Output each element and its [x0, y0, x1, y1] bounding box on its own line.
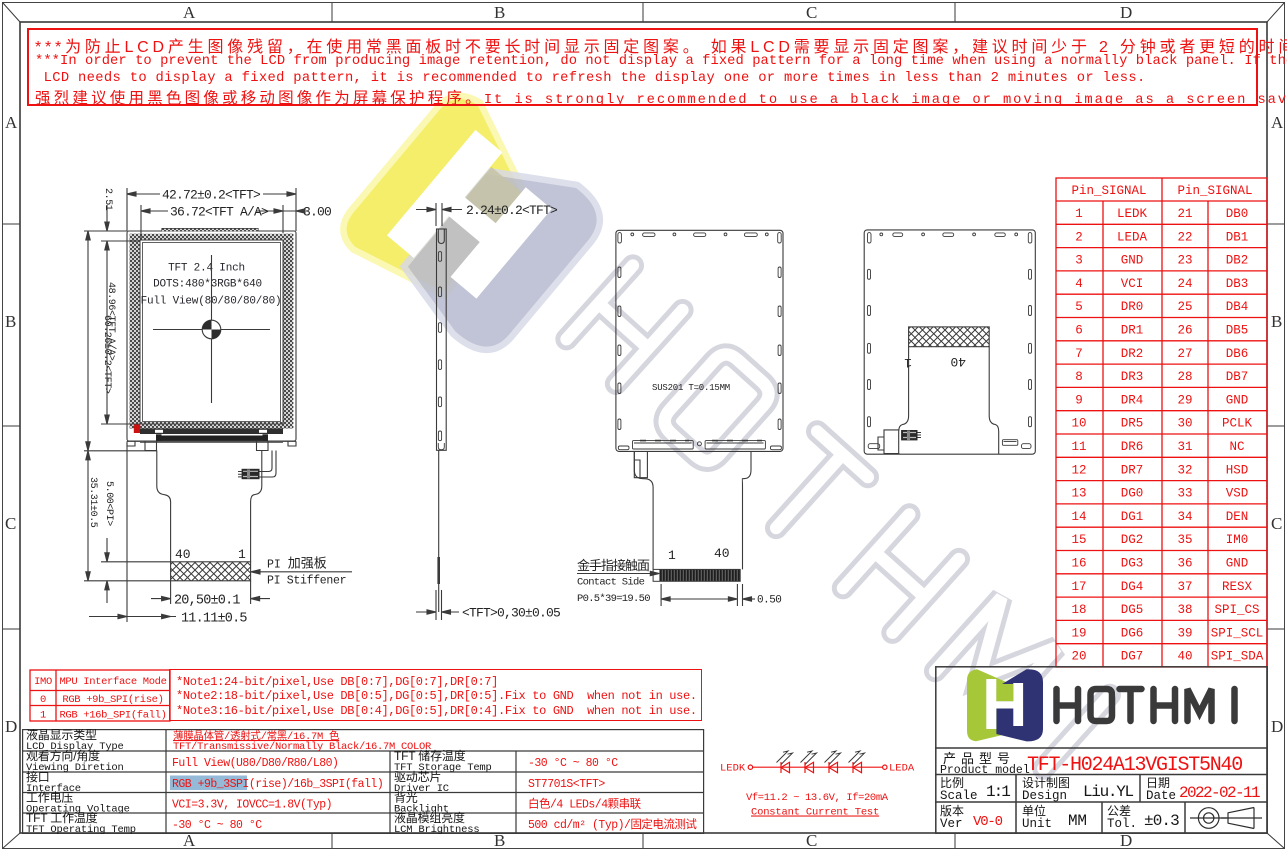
svg-text:25: 25: [1177, 300, 1192, 314]
svg-text:35: 35: [1177, 533, 1192, 547]
svg-text:LEDA: LEDA: [1117, 230, 1148, 244]
svg-text:4: 4: [1075, 277, 1083, 291]
svg-text:27: 27: [1177, 347, 1192, 361]
svg-text:21: 21: [1177, 207, 1192, 221]
svg-text:DG7: DG7: [1121, 650, 1144, 664]
svg-text:PI Stiffener: PI Stiffener: [267, 575, 346, 588]
svg-text:22: 22: [1177, 230, 1192, 244]
svg-text:LEDK: LEDK: [720, 763, 746, 775]
svg-text:TFT 2.4 Inch: TFT 2.4 Inch: [168, 263, 245, 275]
svg-text:VSD: VSD: [1226, 487, 1249, 501]
svg-text:Unit: Unit: [1022, 817, 1052, 831]
svg-text:版本: 版本: [940, 804, 964, 818]
svg-text:48.96<TFT A/A>: 48.96<TFT A/A>: [105, 282, 117, 361]
svg-text:驱动芯片: 驱动芯片: [394, 770, 441, 784]
svg-text:3: 3: [1075, 254, 1083, 268]
svg-text:工作电压: 工作电压: [26, 791, 73, 805]
svg-text:30: 30: [1177, 417, 1192, 431]
svg-text:DG5: DG5: [1121, 603, 1144, 617]
svg-text:比例: 比例: [940, 776, 964, 790]
svg-text:±0.3: ±0.3: [1144, 812, 1179, 830]
svg-text:IM0: IM0: [1226, 533, 1249, 547]
svg-text:DR1: DR1: [1121, 324, 1144, 338]
svg-text:Vf=11.2 ~ 13.6V, If=20mA: Vf=11.2 ~ 13.6V, If=20mA: [746, 792, 889, 804]
svg-text:TFT-H024A13VGIST5N40: TFT-H024A13VGIST5N40: [1027, 754, 1242, 777]
svg-text:DG4: DG4: [1121, 580, 1144, 594]
svg-text:40: 40: [175, 547, 191, 562]
svg-text:DG3: DG3: [1121, 557, 1144, 571]
svg-text:26: 26: [1177, 324, 1192, 338]
svg-text:设计制图: 设计制图: [1022, 776, 1070, 790]
svg-text:7: 7: [1075, 347, 1083, 361]
svg-text:20: 20: [1071, 650, 1086, 664]
svg-text:35.31±0.5: 35.31±0.5: [87, 477, 98, 528]
svg-text:DR3: DR3: [1121, 370, 1144, 384]
svg-text:1: 1: [238, 547, 246, 562]
svg-text:1: 1: [1075, 207, 1083, 221]
svg-text:ST7701S<TFT>: ST7701S<TFT>: [528, 778, 605, 791]
svg-text:DR6: DR6: [1121, 440, 1144, 454]
svg-text:DB2: DB2: [1226, 254, 1249, 268]
svg-text:DR0: DR0: [1121, 300, 1144, 314]
svg-text:单位: 单位: [1022, 803, 1046, 818]
svg-text:34: 34: [1177, 510, 1192, 524]
svg-text:SUS201 T=0.15MM: SUS201 T=0.15MM: [652, 383, 730, 393]
svg-text:24: 24: [1177, 277, 1192, 291]
svg-text:5: 5: [1075, 300, 1083, 314]
svg-text:Liu.YL: Liu.YL: [1083, 783, 1134, 801]
svg-text:14: 14: [1071, 510, 1086, 524]
svg-text:TFT/Transmissive/Normally Blac: TFT/Transmissive/Normally Black/16.7M CO…: [173, 741, 432, 753]
svg-text:DG1: DG1: [1121, 510, 1144, 524]
svg-text:29: 29: [1177, 393, 1192, 407]
svg-text:Tol.: Tol.: [1107, 817, 1137, 831]
svg-text:Design: Design: [1022, 789, 1067, 803]
svg-text:PCLK: PCLK: [1222, 417, 1253, 431]
svg-text:Pin_SIGNAL: Pin_SIGNAL: [1177, 184, 1252, 198]
svg-text:IMO: IMO: [34, 676, 52, 688]
svg-text:38: 38: [1177, 603, 1192, 617]
svg-text:9: 9: [1075, 393, 1083, 407]
svg-text:DB4: DB4: [1226, 300, 1249, 314]
svg-text:RGB +9b_SPI(rise): RGB +9b_SPI(rise): [62, 694, 163, 706]
svg-text:DEN: DEN: [1226, 510, 1249, 524]
svg-text:36.72<TFT A/A>: 36.72<TFT A/A>: [170, 205, 269, 220]
svg-text:金手指接触面: 金手指接触面: [577, 558, 650, 573]
svg-text:10: 10: [1071, 417, 1086, 431]
svg-text:32: 32: [1177, 463, 1192, 477]
svg-text:Date: Date: [1146, 789, 1176, 803]
svg-text:19: 19: [1071, 626, 1086, 640]
svg-text:RGB +16b_SPI(fall): RGB +16b_SPI(fall): [59, 709, 166, 721]
svg-text:13: 13: [1071, 487, 1086, 501]
svg-text:12: 12: [1071, 463, 1086, 477]
svg-text:-30 °C ~ 80 °C: -30 °C ~ 80 °C: [172, 819, 262, 832]
svg-text:40: 40: [950, 354, 966, 369]
svg-text:DB3: DB3: [1226, 277, 1249, 291]
svg-text:LCM Brightness: LCM Brightness: [394, 824, 479, 835]
svg-text:1: 1: [40, 709, 46, 721]
svg-text:V0-0: V0-0: [973, 814, 1003, 830]
svg-text:DR4: DR4: [1121, 393, 1144, 407]
svg-text:2022-02-11: 2022-02-11: [1179, 784, 1260, 802]
svg-text:HSD: HSD: [1226, 463, 1249, 477]
svg-text:RGB +9b_3SPI(rise)/16b_3SPI(fa: RGB +9b_3SPI(rise)/16b_3SPI(fall): [172, 778, 383, 791]
svg-text:Constant Current Test: Constant Current Test: [751, 807, 879, 819]
svg-text:DB1: DB1: [1226, 230, 1249, 244]
svg-text:31: 31: [1177, 440, 1192, 454]
svg-text:2.51: 2.51: [102, 188, 113, 211]
svg-text:DB7: DB7: [1226, 370, 1249, 384]
svg-text:500 cd/m² (Typ)/固定电流测试: 500 cd/m² (Typ)/固定电流测试: [528, 817, 697, 832]
svg-text:观看方向/角度: 观看方向/角度: [26, 748, 100, 763]
svg-text:GND: GND: [1121, 254, 1144, 268]
svg-text:MM: MM: [1068, 812, 1087, 830]
svg-text:LEDA: LEDA: [889, 763, 915, 775]
svg-text:15: 15: [1071, 533, 1086, 547]
svg-text:DB0: DB0: [1226, 207, 1249, 221]
svg-text:2.24±0.2<TFT>: 2.24±0.2<TFT>: [466, 203, 558, 218]
svg-text:28: 28: [1177, 370, 1192, 384]
svg-text:-30 °C ~ 80 °C: -30 °C ~ 80 °C: [528, 757, 618, 770]
svg-text:11.11±0.5: 11.11±0.5: [181, 612, 247, 627]
svg-text:日期: 日期: [1146, 776, 1170, 790]
svg-text:GND: GND: [1226, 557, 1249, 571]
svg-text:P0.5*39=19.50: P0.5*39=19.50: [577, 593, 650, 605]
svg-text:40: 40: [1177, 650, 1192, 664]
svg-text:VCI: VCI: [1121, 277, 1144, 291]
svg-text:公差: 公差: [1107, 804, 1131, 818]
svg-text:接口: 接口: [26, 769, 50, 784]
svg-text:DG2: DG2: [1121, 533, 1144, 547]
svg-text:DG0: DG0: [1121, 487, 1144, 501]
svg-text:3.00: 3.00: [303, 205, 331, 220]
svg-text:8: 8: [1075, 370, 1083, 384]
svg-text:PI 加强板: PI 加强板: [267, 556, 327, 572]
svg-text:18: 18: [1071, 603, 1086, 617]
svg-text:GND: GND: [1226, 393, 1249, 407]
svg-text:16: 16: [1071, 557, 1086, 571]
svg-text:1:1: 1:1: [986, 783, 1010, 801]
svg-text:36: 36: [1177, 557, 1192, 571]
svg-text:Ver: Ver: [940, 817, 963, 831]
svg-text:TFT 工作温度: TFT 工作温度: [26, 810, 98, 825]
svg-text:11: 11: [1071, 440, 1086, 454]
svg-text:37: 37: [1177, 580, 1192, 594]
svg-text:MPU Interface Mode: MPU Interface Mode: [59, 676, 166, 688]
svg-text:SPI_SCL: SPI_SCL: [1211, 626, 1264, 640]
svg-text:6: 6: [1075, 324, 1083, 338]
svg-text:白色/4 LEDs/4颗串联: 白色/4 LEDs/4颗串联: [528, 797, 642, 812]
svg-text:Scale: Scale: [940, 789, 978, 803]
svg-text:40: 40: [714, 546, 730, 561]
svg-text:VCI=3.3V, IOVCC=1.8V(Typ): VCI=3.3V, IOVCC=1.8V(Typ): [172, 799, 332, 812]
svg-text:DR5: DR5: [1121, 417, 1144, 431]
svg-text:33: 33: [1177, 487, 1192, 501]
svg-text:<TFT>0,30±0.05: <TFT>0,30±0.05: [462, 606, 560, 621]
svg-text:0.50: 0.50: [757, 595, 781, 607]
svg-text:2: 2: [1075, 230, 1083, 244]
svg-text:TFT Operating Temp: TFT Operating Temp: [26, 824, 136, 835]
svg-text:液晶模组亮度: 液晶模组亮度: [394, 810, 465, 825]
svg-text:Contact Side: Contact Side: [577, 577, 645, 589]
svg-text:5.00<PI>: 5.00<PI>: [103, 481, 114, 526]
svg-text:DG6: DG6: [1121, 626, 1144, 640]
svg-text:23: 23: [1177, 254, 1192, 268]
svg-text:SPI_SDA: SPI_SDA: [1211, 650, 1264, 664]
svg-text:LEDK: LEDK: [1117, 207, 1148, 221]
svg-text:DOTS:480*3RGB*640: DOTS:480*3RGB*640: [153, 279, 262, 291]
svg-text:Full View(U80/D80/R80/L80): Full View(U80/D80/R80/L80): [172, 757, 338, 770]
svg-text:39: 39: [1177, 626, 1192, 640]
svg-text:17: 17: [1071, 580, 1086, 594]
svg-text:DR7: DR7: [1121, 463, 1144, 477]
svg-text:1: 1: [668, 548, 676, 563]
svg-text:DR2: DR2: [1121, 347, 1144, 361]
svg-text:0: 0: [40, 694, 46, 706]
svg-text:42.72±0.2<TFT>: 42.72±0.2<TFT>: [162, 188, 261, 203]
svg-text:背光: 背光: [394, 791, 418, 805]
svg-text:SPI_CS: SPI_CS: [1214, 603, 1259, 617]
svg-text:NC: NC: [1229, 440, 1244, 454]
svg-text:DB5: DB5: [1226, 324, 1249, 338]
svg-text:20,50±0.1: 20,50±0.1: [174, 594, 240, 609]
svg-text:Pin_SIGNAL: Pin_SIGNAL: [1071, 184, 1146, 198]
svg-text:1: 1: [904, 355, 912, 370]
svg-text:RESX: RESX: [1222, 580, 1253, 594]
svg-text:DB6: DB6: [1226, 347, 1249, 361]
